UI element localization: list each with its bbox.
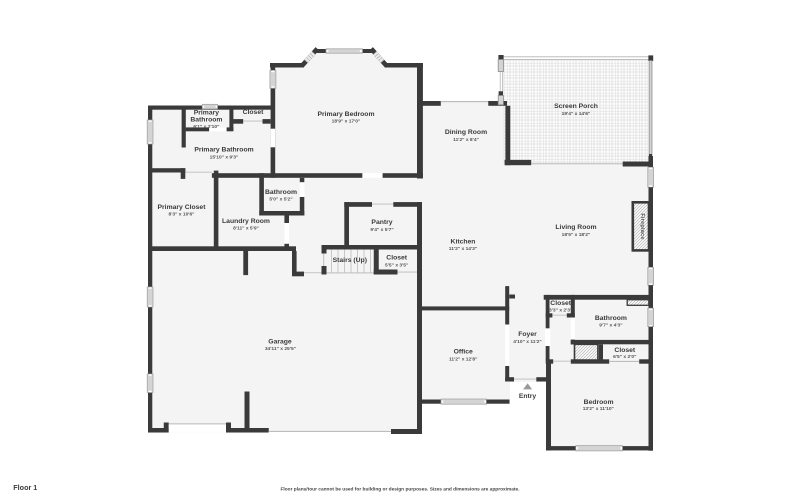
svg-text:Garage: Garage — [268, 339, 292, 346]
svg-text:5'0" x 5'2": 5'0" x 5'2" — [269, 196, 292, 202]
svg-text:Entry: Entry — [519, 393, 537, 400]
svg-text:3'3" x 2'3": 3'3" x 2'3" — [549, 308, 572, 314]
svg-text:Stairs (Up): Stairs (Up) — [333, 257, 367, 264]
svg-text:Primary Bathroom: Primary Bathroom — [194, 147, 253, 154]
svg-text:6'1" x 2'10": 6'1" x 2'10" — [193, 124, 219, 130]
svg-text:Fireplace: Fireplace — [639, 213, 645, 239]
svg-text:9'4" x 5'7": 9'4" x 5'7" — [370, 227, 393, 233]
svg-text:Pantry: Pantry — [371, 219, 392, 226]
svg-text:18'9" x 17'0": 18'9" x 17'0" — [332, 118, 361, 124]
svg-text:11'2" x 14'3": 11'2" x 14'3" — [449, 246, 477, 252]
svg-text:Bathroom: Bathroom — [595, 315, 627, 322]
svg-text:Closet: Closet — [243, 109, 265, 116]
svg-text:4'10" x 11'2": 4'10" x 11'2" — [513, 339, 541, 345]
svg-text:Foyer: Foyer — [518, 331, 537, 338]
svg-text:Primary Closet: Primary Closet — [158, 204, 207, 211]
svg-text:Floor 1: Floor 1 — [13, 483, 37, 492]
svg-text:Floor plans/tour cannot be use: Floor plans/tour cannot be used for buil… — [280, 487, 519, 493]
svg-text:Primary: Primary — [194, 109, 220, 116]
svg-text:Bedroom: Bedroom — [584, 399, 614, 406]
svg-text:34'11" x 25'5": 34'11" x 25'5" — [265, 346, 296, 352]
svg-text:Primary Bedroom: Primary Bedroom — [317, 111, 374, 118]
svg-text:Living Room: Living Room — [555, 224, 596, 231]
svg-text:Closet: Closet — [614, 347, 636, 354]
svg-text:5'5" x 3'5": 5'5" x 3'5" — [385, 262, 408, 268]
svg-text:Bathroom: Bathroom — [190, 116, 222, 123]
svg-text:11'2" x 12'8": 11'2" x 12'8" — [449, 357, 477, 363]
svg-text:6'5" x 2'0": 6'5" x 2'0" — [613, 354, 636, 360]
svg-text:Dining Room: Dining Room — [445, 129, 487, 136]
svg-text:13'2" x 11'10": 13'2" x 11'10" — [583, 406, 614, 412]
svg-text:Screen Porch: Screen Porch — [554, 103, 598, 110]
svg-text:9'7" x 4'3": 9'7" x 4'3" — [599, 323, 622, 329]
svg-text:19'4" x 14'6": 19'4" x 14'6" — [562, 111, 591, 117]
svg-text:11'2" x 8'4": 11'2" x 8'4" — [453, 137, 479, 143]
svg-text:Closet: Closet — [386, 255, 408, 262]
svg-text:8'11" x 5'9": 8'11" x 5'9" — [233, 226, 259, 232]
svg-text:Kitchen: Kitchen — [451, 239, 476, 246]
svg-text:18'5" x 18'2": 18'5" x 18'2" — [562, 232, 591, 238]
svg-text:Laundry Room: Laundry Room — [222, 218, 270, 225]
svg-text:Office: Office — [454, 349, 473, 356]
svg-text:Closet: Closet — [550, 300, 572, 307]
svg-text:Bathroom: Bathroom — [265, 189, 297, 196]
svg-text:15'10" x 9'3": 15'10" x 9'3" — [210, 154, 239, 160]
svg-text:8'3" x 10'6": 8'3" x 10'6" — [168, 212, 194, 218]
